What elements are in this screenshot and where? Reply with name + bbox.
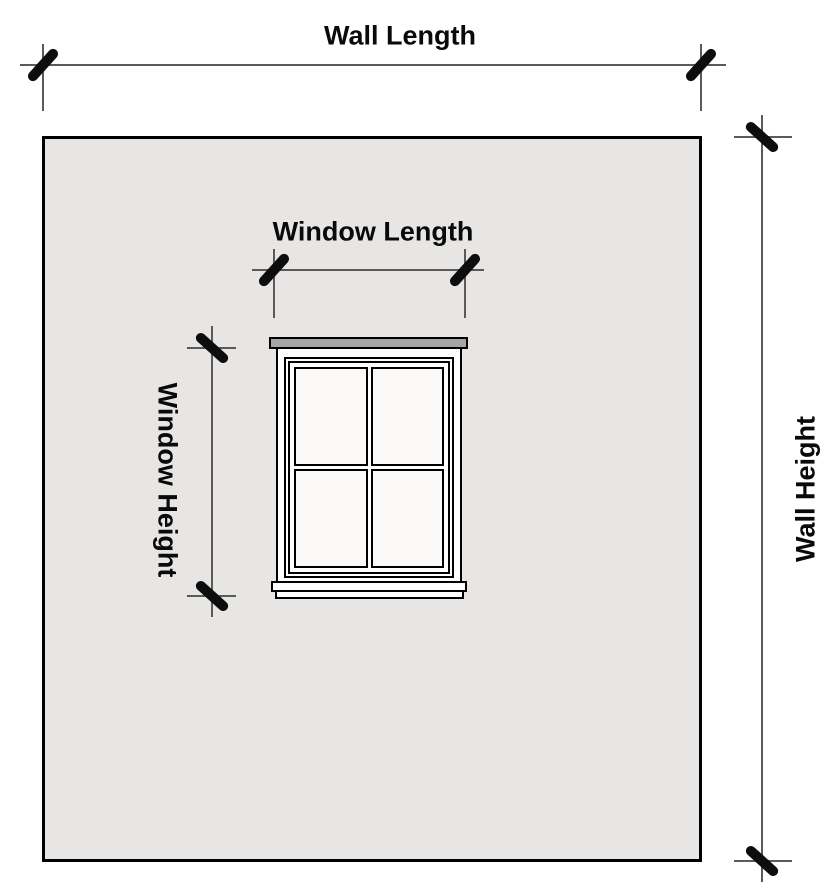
window-sash-inner <box>288 361 450 574</box>
window-lintel <box>269 337 468 349</box>
window-length-extension-line-left <box>273 249 275 318</box>
wall-height-label: Wall Height <box>793 416 820 562</box>
wall-length-extension-line-right <box>700 44 702 111</box>
window-length-extension-line-right <box>464 249 466 318</box>
wall-length-label: Wall Length <box>324 23 476 50</box>
window-length-dimension-line <box>252 269 484 271</box>
window-pane-top-right <box>371 367 445 466</box>
window-height-dimension-line <box>211 326 213 617</box>
diagram-canvas: Wall Length Wall Height Window Length Wi… <box>0 0 835 892</box>
window-pane-top-left <box>294 367 368 466</box>
wall-length-dimension-line <box>20 64 726 66</box>
window-sash <box>284 357 454 578</box>
window-length-label: Window Length <box>273 219 474 246</box>
wall-height-dimension-line <box>761 115 763 882</box>
wall-length-extension-line-left <box>42 44 44 111</box>
window-height-label: Window Height <box>154 383 181 578</box>
window-pane-bottom-left <box>294 469 368 568</box>
window-pane-bottom-right <box>371 469 445 568</box>
window-sill-apron <box>275 590 464 599</box>
